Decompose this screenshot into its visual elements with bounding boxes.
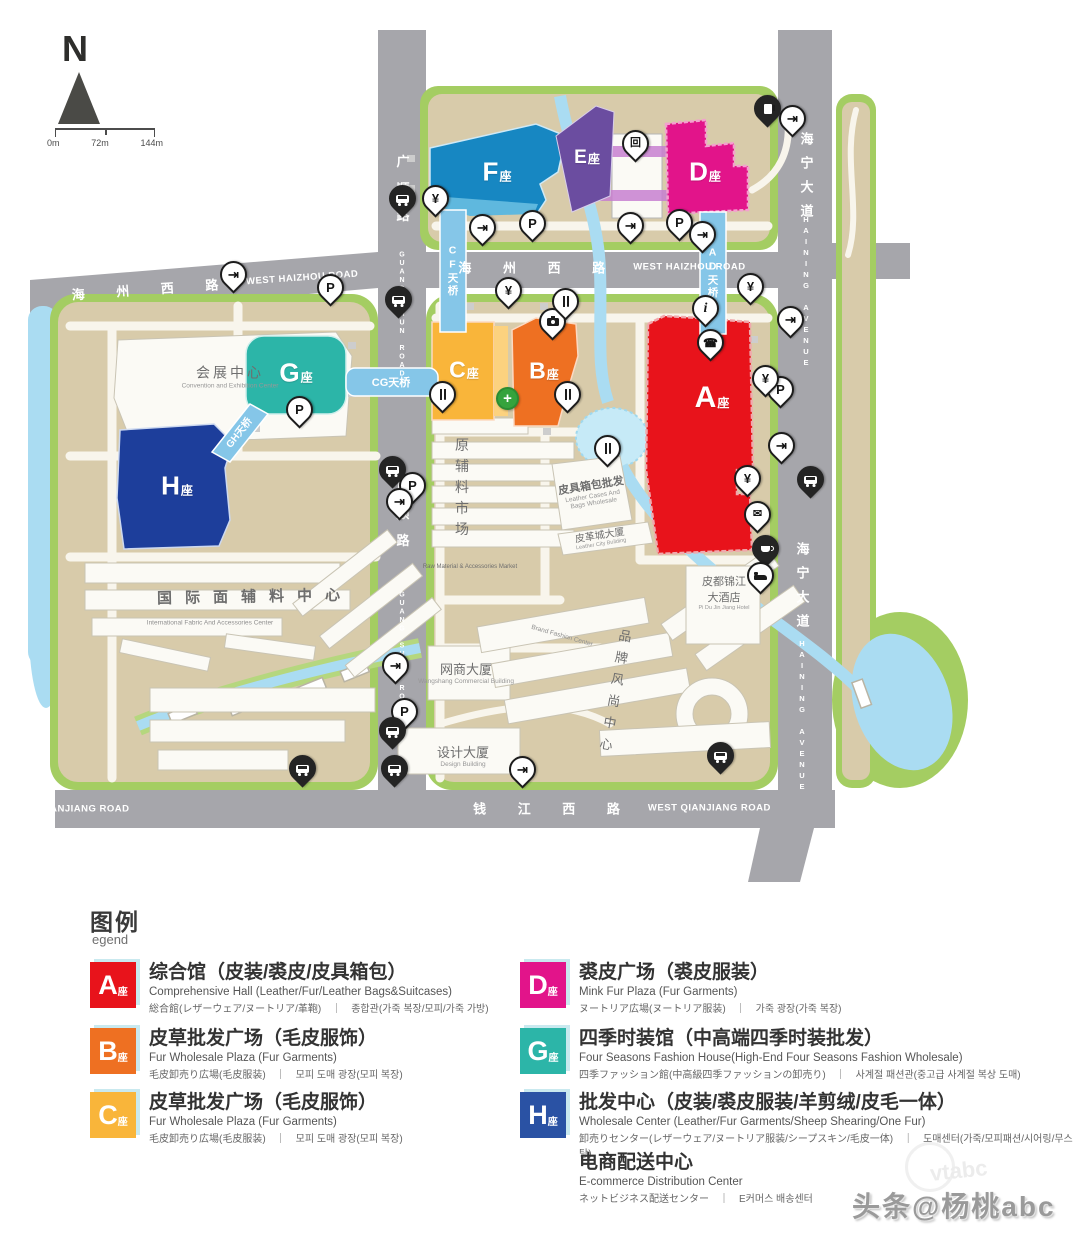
legend-b-en: Fur Wholesale Plaza (Fur Garments): [149, 1052, 403, 1064]
legend-g-en: Four Seasons Fashion House(High-End Four…: [579, 1052, 1021, 1064]
scale-bar: 0m 72m 144m: [55, 128, 155, 148]
legend-d-title: 裘皮广场（裘皮服装）: [579, 962, 841, 984]
legend-b-title: 皮草批发广场（毛皮服饰）: [149, 1028, 403, 1050]
mail-icon: ✉: [746, 503, 769, 526]
exit-icon: ⇥: [781, 107, 804, 130]
legend-subtitle: egend: [92, 932, 128, 947]
exit-icon: ⇥: [384, 654, 407, 677]
bridge-cg-shape: [346, 368, 438, 396]
legend-g-title: 四季时装馆（中高端四季时装批发）: [579, 1028, 1021, 1050]
camera-icon: [547, 318, 559, 326]
legend-ec-jk: ネットビジネス配送センター ｜ E커머스 배송센터: [579, 1190, 813, 1205]
bus-icon: [396, 195, 409, 203]
info-icon: i: [694, 297, 717, 320]
restaurant-icon: [561, 296, 570, 307]
fuel-icon: [764, 104, 772, 114]
medical-pin: +: [496, 387, 519, 410]
legend-entry-c: C座 皮草批发广场（毛皮服饰） Fur Wholesale Plaza (Fur…: [90, 1092, 403, 1145]
bus-icon: [714, 752, 727, 760]
legend-entry-ecommerce: 电商配送中心 E-commerce Distribution Center ネッ…: [579, 1152, 813, 1205]
north-arrow-icon: [58, 72, 100, 124]
parking-icon: P: [319, 276, 342, 299]
exit-icon: ⇥: [471, 216, 494, 239]
scale-144: 144m: [140, 138, 163, 148]
medical-cross-icon: +: [498, 389, 517, 408]
coffee-icon: [761, 546, 770, 552]
legend-ec-title: 电商配送中心: [579, 1152, 813, 1174]
legend-entry-d: D座 裘皮广场（裘皮服装） Mink Fur Plaza (Fur Garmen…: [520, 962, 841, 1015]
restaurant-icon: [563, 389, 572, 400]
legend-entry-g: G座 四季时装馆（中高端四季时装批发） Four Seasons Fashion…: [520, 1028, 1021, 1081]
exit-icon: ⇥: [779, 308, 802, 331]
legend-g-jk: 四季ファッション館(中高級四季ファッションの卸売り) ｜ 사계절 패션관(중고급…: [579, 1066, 1021, 1081]
legend-d-en: Mink Fur Plaza (Fur Garments): [579, 986, 841, 998]
parking-icon: P: [288, 398, 311, 421]
exit-icon: ⇥: [511, 758, 534, 781]
legend-b-jk: 毛皮卸売り広場(毛皮服装) ｜ 모피 도매 광장(모피 복장): [149, 1066, 403, 1081]
exit-icon: ⇥: [619, 214, 642, 237]
legend-ec-en: E-commerce Distribution Center: [579, 1176, 813, 1188]
scale-bar-line: [55, 128, 155, 137]
legend-a-title: 综合馆（皮装/裘皮/皮具箱包）: [149, 962, 489, 984]
yen-icon: ¥: [739, 275, 762, 298]
yen-icon: ¥: [754, 367, 777, 390]
legend-a-en: Comprehensive Hall (Leather/Fur/Leather …: [149, 986, 489, 998]
bus-icon: [392, 296, 405, 304]
watermark-ghost: vtabc: [929, 1155, 989, 1187]
legend-swatch-c: C座: [90, 1092, 136, 1138]
legend-entry-a: A座 综合馆（皮装/裘皮/皮具箱包） Comprehensive Hall (L…: [90, 962, 489, 1015]
legend-swatch-b: B座: [90, 1028, 136, 1074]
north-label: N: [62, 28, 88, 70]
scale-72: 72m: [91, 138, 109, 148]
restaurant-icon: [603, 443, 612, 454]
legend-h-title: 批发中心（皮装/裘皮服装/羊剪绒/皮毛一体）: [579, 1092, 1080, 1114]
garage-icon: 回: [624, 132, 647, 155]
bus-icon: [388, 765, 401, 773]
yen-icon: ¥: [497, 279, 520, 302]
legend-c-jk: 毛皮卸売り広場(毛皮服装) ｜ 모피 도매 광장(모피 복장): [149, 1130, 403, 1145]
leather-city-map-page: N 0m 72m 144m 海 州 西 路 WEST HAIZHOU ROAD …: [0, 0, 1080, 1247]
scale-0: 0m: [47, 138, 60, 148]
bus-icon: [386, 727, 399, 735]
legend-h-en: Wholesale Center (Leather/Fur Garments/S…: [579, 1116, 1080, 1128]
yen-icon: ¥: [424, 187, 447, 210]
bus-icon: [296, 765, 309, 773]
legend-entry-h: H座 批发中心（皮装/裘皮服装/羊剪绒/皮毛一体） Wholesale Cent…: [520, 1092, 1080, 1160]
legend-swatch-d: D座: [520, 962, 566, 1008]
yen-icon: ¥: [736, 467, 759, 490]
legend-swatch-h: H座: [520, 1092, 566, 1138]
watermark-text: 头条@杨桃abc: [852, 1185, 1056, 1225]
legend-swatch-g: G座: [520, 1028, 566, 1074]
exit-icon: ⇥: [388, 490, 411, 513]
legend-d-jk: ヌートリア広場(ヌートリア服装) ｜ 가죽 광장(가죽 복장): [579, 1000, 841, 1015]
bridge-cf-shape: [440, 210, 466, 332]
building-h-shape: [117, 424, 233, 549]
bus-icon: [804, 476, 817, 484]
restaurant-icon: [438, 389, 447, 400]
parking-icon: P: [668, 211, 691, 234]
phone-icon: ☎: [699, 331, 722, 354]
legend-a-jk: 総合館(レザーウェア/ヌートリア/革鞄) ｜ 종합관(가죽 복장/모피/가죽 가…: [149, 1000, 489, 1015]
map-canvas: [0, 0, 1080, 890]
legend-entry-b: B座 皮草批发广场（毛皮服饰） Fur Wholesale Plaza (Fur…: [90, 1028, 403, 1081]
exit-icon: ⇥: [770, 434, 793, 457]
exit-icon: ⇥: [222, 263, 245, 286]
legend-c-title: 皮草批发广场（毛皮服饰）: [149, 1092, 403, 1114]
exit-icon: ⇥: [691, 223, 714, 246]
legend-c-en: Fur Wholesale Plaza (Fur Garments): [149, 1116, 403, 1128]
legend-swatch-a: A座: [90, 962, 136, 1008]
bus-icon: [386, 466, 399, 474]
bed-icon: [754, 575, 767, 580]
parking-icon: P: [521, 212, 544, 235]
